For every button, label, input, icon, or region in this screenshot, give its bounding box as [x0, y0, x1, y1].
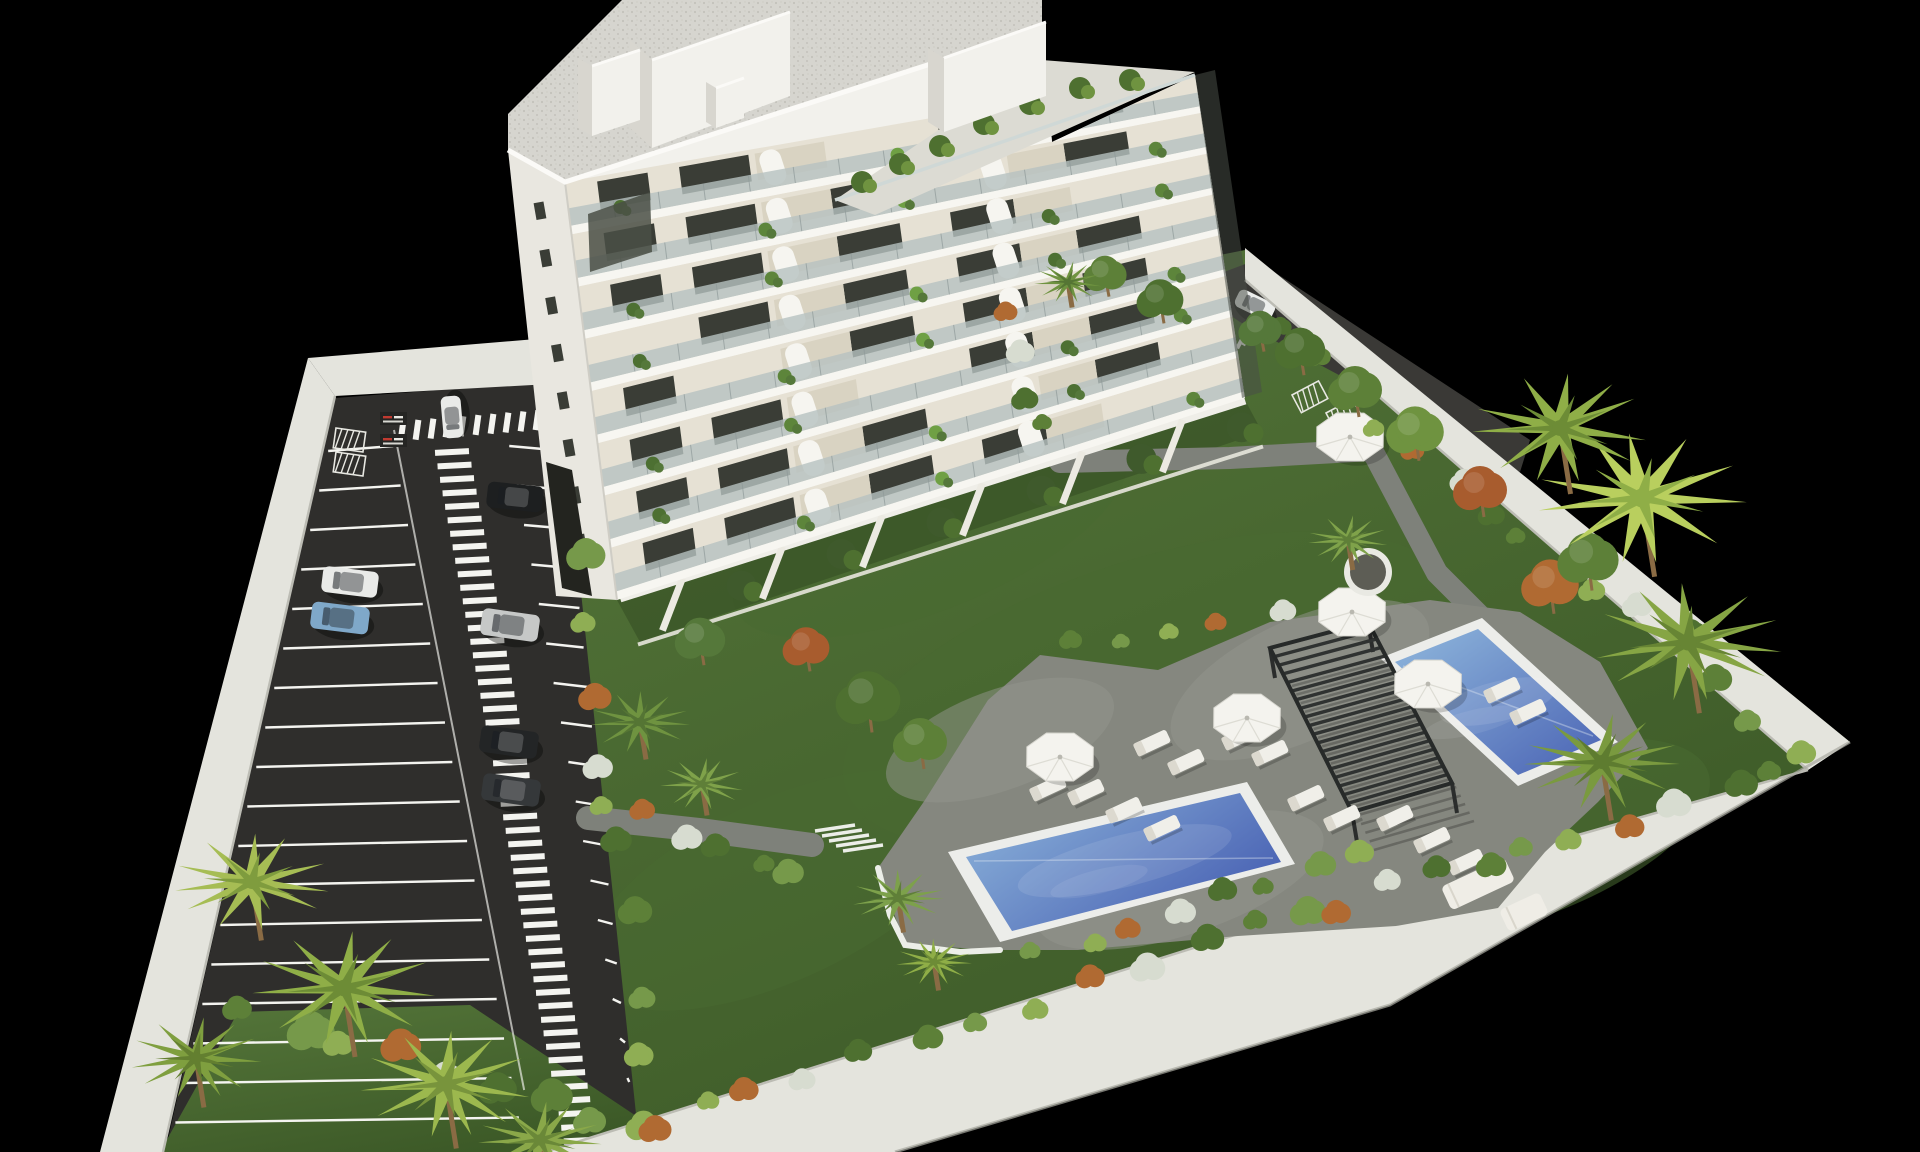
planter-soil	[1350, 554, 1386, 590]
bush-lobe	[1791, 740, 1811, 760]
bush-lobe	[578, 1107, 601, 1130]
sign-plate	[380, 412, 407, 425]
parasol-pole	[1426, 682, 1431, 687]
roof-terrace-plant	[1031, 101, 1045, 115]
parking-sign	[380, 412, 407, 425]
bush-lobe	[1310, 851, 1332, 873]
terrace-hedge	[844, 550, 864, 570]
balcony-plant	[1050, 215, 1060, 225]
bush-lobe	[1023, 942, 1037, 956]
balcony-plant	[1075, 390, 1085, 400]
palm-crown	[438, 1076, 453, 1091]
tree-highlight	[1092, 261, 1109, 278]
bush-lobe	[848, 1039, 867, 1058]
tree-highlight	[1285, 333, 1305, 353]
bush-lobe	[1208, 613, 1223, 628]
parking-sign	[380, 434, 407, 447]
car-roof	[504, 487, 529, 508]
car-roof	[444, 406, 460, 425]
bush-lobe	[644, 1115, 667, 1138]
balcony-plant	[654, 463, 664, 473]
tree-highlight	[1339, 372, 1360, 393]
sign-plate	[380, 434, 407, 447]
bush-lobe	[572, 538, 599, 565]
bush-lobe	[623, 896, 647, 920]
bush-lobe	[633, 987, 652, 1006]
balcony-plant	[1194, 398, 1204, 408]
parasol-pole	[1350, 610, 1355, 615]
bush-lobe	[605, 826, 627, 848]
bush-lobe	[387, 1028, 415, 1056]
bush-lobe	[583, 683, 606, 706]
parasol-pole	[1058, 755, 1063, 760]
bush-lobe	[633, 799, 651, 817]
bush-lobe	[1274, 599, 1292, 617]
sign-text-red	[383, 416, 392, 418]
parasol-pole	[1348, 435, 1353, 440]
bush-lobe	[1087, 933, 1103, 949]
balcony-plant	[924, 339, 934, 349]
palm-crown	[1633, 489, 1652, 508]
bush-lobe	[593, 796, 609, 812]
bush-lobe	[917, 1025, 938, 1046]
bush-lobe	[997, 302, 1013, 318]
penthouse-side	[578, 58, 592, 136]
bush-lobe	[1509, 528, 1523, 542]
palm-crown	[534, 1134, 545, 1145]
balcony-plant	[766, 229, 776, 239]
bush-lobe	[574, 612, 591, 629]
tree-highlight	[1247, 316, 1264, 333]
tree-highlight	[685, 623, 705, 643]
bush-lobe	[1620, 814, 1640, 834]
bush-lobe	[1627, 592, 1648, 613]
roof-terrace-plant	[1131, 77, 1145, 91]
bush-lobe	[587, 754, 608, 775]
palm-crown	[1065, 279, 1071, 285]
tree-highlight	[1532, 566, 1554, 588]
balcony-plant	[786, 375, 796, 385]
bush-lobe	[676, 824, 697, 845]
balcony-plant	[905, 200, 915, 210]
terrace-hedge	[1144, 455, 1164, 475]
bush-lobe	[1247, 910, 1264, 927]
balcony-plant	[792, 424, 802, 434]
car-roof	[498, 614, 525, 637]
car-roof	[328, 607, 355, 629]
palm-crown	[931, 959, 938, 966]
bush-lobe	[1427, 855, 1446, 874]
bush-lobe	[629, 1042, 649, 1062]
balcony-plant	[918, 293, 928, 303]
bush-lobe	[1378, 869, 1397, 888]
penthouse-side	[928, 48, 944, 132]
bush-lobe	[1326, 900, 1346, 920]
bush-lobe	[777, 859, 799, 881]
balcony-plant	[1163, 189, 1173, 199]
balcony-plant	[773, 277, 783, 287]
bush-lobe	[1119, 918, 1137, 936]
balcony-plant	[641, 360, 651, 370]
bush-lobe	[1703, 664, 1727, 688]
car-roof	[339, 571, 365, 592]
aerial-render-canvas	[0, 0, 1920, 1152]
bush-lobe	[1662, 789, 1687, 814]
bush-lobe	[705, 833, 725, 853]
bush-lobe	[1196, 924, 1219, 947]
terrace-hedge	[1044, 487, 1064, 507]
palm-crown	[1344, 536, 1351, 543]
tree-highlight	[1397, 413, 1419, 435]
palm-crown	[1595, 755, 1609, 769]
balcony-plant	[805, 521, 815, 531]
bush-lobe	[700, 1091, 715, 1106]
bush-lobe	[1212, 877, 1232, 897]
tree-highlight	[1146, 284, 1164, 302]
balcony-plant	[1056, 259, 1066, 269]
bush-lobe	[1135, 952, 1160, 977]
palm-crown	[336, 980, 353, 997]
bush-lobe	[1559, 829, 1577, 847]
bush-lobe	[1738, 710, 1757, 729]
bush-lobe	[227, 996, 247, 1016]
bush-lobe	[1010, 339, 1030, 359]
palm-crown	[698, 780, 706, 788]
bush-lobe	[537, 1078, 566, 1107]
palm-crown	[1552, 420, 1568, 436]
bush-lobe	[1256, 877, 1271, 892]
balcony-plant	[660, 514, 670, 524]
tree-highlight	[1464, 472, 1485, 493]
bush-lobe	[1349, 840, 1369, 860]
roof-terrace-plant	[1081, 85, 1095, 99]
sign-text-red	[383, 438, 392, 440]
bush-lobe	[793, 1068, 812, 1087]
roof-terrace-plant	[901, 161, 915, 175]
bush-lobe	[1115, 634, 1127, 646]
bush-lobe	[1295, 896, 1320, 921]
tree-highlight	[848, 678, 873, 703]
balcony-plant	[1182, 314, 1192, 324]
tree-highlight	[1569, 540, 1593, 564]
bush-lobe	[1015, 387, 1034, 406]
sign-text-white	[394, 416, 403, 418]
bush-lobe	[1170, 898, 1191, 919]
terrace-hedge	[944, 518, 964, 538]
bush-lobe	[967, 1013, 984, 1030]
bush-lobe	[734, 1077, 754, 1097]
stall-line	[627, 1078, 629, 1082]
bush-lobe	[1026, 998, 1044, 1016]
palm-crown	[894, 894, 902, 902]
roof-terrace-plant	[941, 143, 955, 157]
sign-text-white	[394, 438, 403, 440]
tree-highlight	[792, 632, 810, 650]
palm-crown	[190, 1052, 202, 1064]
bush-lobe	[1730, 770, 1753, 793]
balcony-plant	[937, 431, 947, 441]
palm-crown	[1679, 633, 1696, 650]
tree-highlight	[904, 724, 925, 745]
balcony-plant	[943, 478, 953, 488]
sign-text-small	[383, 421, 403, 423]
bush-lobe	[1761, 761, 1778, 778]
balcony-plant	[1176, 273, 1186, 283]
bush-lobe	[1513, 837, 1530, 854]
car-roof	[497, 731, 524, 754]
roof-terrace-plant	[985, 121, 999, 135]
palm-crown	[636, 718, 645, 727]
bush-lobe	[1063, 630, 1079, 646]
roof-terrace-plant	[863, 179, 877, 193]
sign-text-small	[383, 443, 403, 445]
bush-lobe	[1035, 414, 1049, 428]
balcony-plant	[1157, 148, 1167, 158]
bush-lobe	[1481, 852, 1502, 873]
bush-lobe	[1366, 419, 1381, 434]
car-roof	[499, 779, 526, 802]
penthouse-side	[706, 82, 716, 128]
palm-crown	[245, 875, 259, 889]
terrace-hedge	[1244, 423, 1264, 443]
balcony-plant	[1069, 346, 1079, 356]
bush-lobe	[1162, 623, 1176, 637]
rendered-image: Aerial 3D architectural rendering: white…	[0, 0, 1920, 1152]
parasol-pole	[1245, 716, 1250, 721]
bush-lobe	[1080, 964, 1100, 984]
balcony-plant	[634, 309, 644, 319]
terrace-hedge	[744, 582, 764, 602]
bush-lobe	[757, 855, 772, 870]
